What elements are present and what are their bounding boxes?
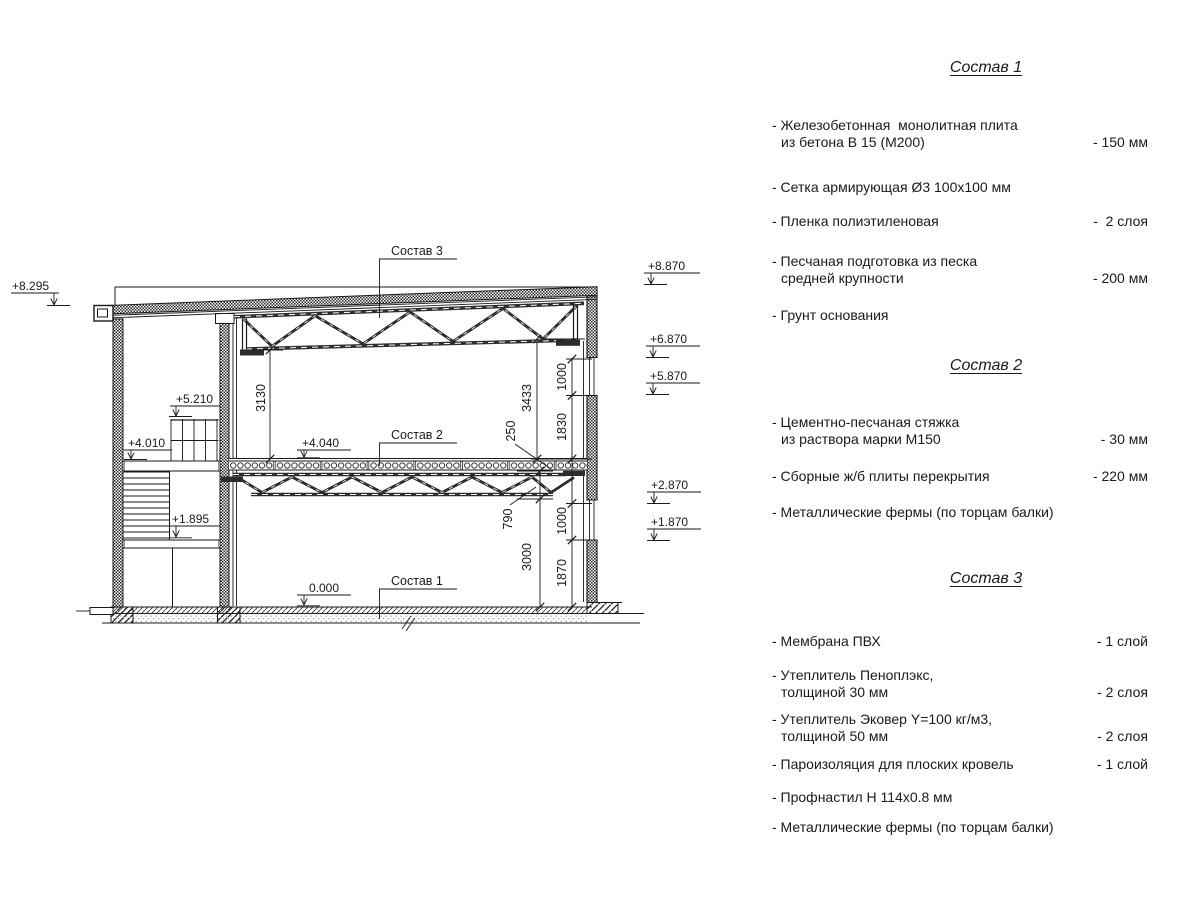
spec-item-value: - 30 мм	[1101, 431, 1148, 448]
spec-item: - Сборные ж/б плиты перекрытия - 220 мм	[772, 468, 1148, 485]
spec-item: - Железобетонная монолитная плитаиз бето…	[772, 117, 1148, 151]
elevation-mark-0000	[297, 595, 351, 606]
level-2870-label: +2.870	[651, 478, 688, 492]
elevation-mark-1895	[168, 526, 220, 538]
floor-slab-level2	[229, 459, 587, 471]
spec-item-text: - Сборные ж/б плиты перекрытия	[772, 468, 990, 485]
dim-1870: 1870	[555, 559, 569, 587]
level-8870-label: +8.870	[648, 259, 685, 273]
spec-item-text: - Песчаная подготовка из песка	[772, 253, 977, 270]
level-4010-label: +4.010	[128, 436, 165, 450]
elevation-mark-4040	[297, 450, 351, 458]
spec-item: - Утеплитель Пеноплэкс,толщиной 30 мм - …	[772, 667, 1148, 701]
spec-item-value: - 1 слой	[1097, 756, 1148, 773]
elevation-mark-5870	[646, 383, 700, 395]
spec-item: - Сетка армирующая Ø3 100х100 мм	[772, 179, 1148, 196]
spec-item-text: - Пароизоляция для плоских кровель	[772, 756, 1014, 773]
spec-item: - Пленка полиэтиленовая - 2 слоя	[772, 213, 1148, 230]
spec-item-value: - 2 слоя	[1097, 684, 1148, 701]
spec-title-1: Состав 1	[772, 59, 1148, 77]
foundation-pad	[587, 603, 618, 614]
spec-item: - Металлические фермы (по торцам балки)	[772, 504, 1148, 521]
lower-window	[586, 500, 597, 540]
elevation-mark-1870	[647, 529, 701, 541]
spec-item-text2: из раствора марки М150	[772, 431, 959, 448]
level-1870-label: +1.870	[651, 515, 688, 529]
spec-item-value: - 150 мм	[1093, 134, 1148, 151]
spec-item-text2: толщиной 50 мм	[772, 728, 992, 745]
elevation-mark-4010	[124, 450, 172, 460]
elevation-mark-5210	[169, 406, 220, 417]
spec-item: - Цементно-песчаная стяжкаиз раствора ма…	[772, 414, 1148, 448]
dim-3130: 3130	[254, 384, 268, 412]
elevation-mark-8295	[11, 293, 70, 306]
spec-item: - Мембрана ПВХ - 1 слой	[772, 633, 1148, 650]
foundation-pad	[111, 607, 133, 623]
dim-790: 790	[501, 509, 515, 530]
spec-item-text: - Грунт основания	[772, 307, 889, 324]
spec-item-text: - Цементно-песчаная стяжка	[772, 414, 959, 431]
callout-sostav2: Состав 2	[391, 428, 443, 442]
blueprint-page: +8.295 +8.870 +6.870 +5.870 +2.870 +1.87…	[0, 0, 1200, 900]
spec-item-text2: толщиной 30 мм	[772, 684, 933, 701]
spec-block-2: Состав 2 - Цементно-песчаная стяжкаиз ра…	[772, 357, 1148, 521]
spec-item-value: - 2 слоя	[1097, 728, 1148, 745]
spec-item-text: - Металлические фермы (по торцам балки)	[772, 504, 1054, 521]
level-5210-label: +5.210	[176, 392, 213, 406]
dim-1830: 1830	[555, 413, 569, 441]
elevation-mark-6870	[646, 346, 700, 358]
spec-item-value: - 2 слоя	[1093, 213, 1148, 230]
dim-1000-upper: 1000	[555, 363, 569, 391]
spec-item-text: - Утеплитель Эковер Y=100 кг/м3,	[772, 711, 992, 728]
left-wall	[113, 319, 123, 607]
spec-block-3: Состав 3 - Мембрана ПВХ - 1 слой - Утепл…	[772, 570, 1148, 836]
spec-item-text: - Профнастил Н 114х0.8 мм	[772, 789, 952, 806]
dim-3000: 3000	[520, 543, 534, 571]
spec-item-text: - Мембрана ПВХ	[772, 633, 881, 650]
eave-detail	[94, 306, 113, 322]
level-5870-label: +5.870	[650, 369, 687, 383]
spec-item: - Металлические фермы (по торцам балки)	[772, 819, 1148, 836]
spec-item-text2: из бетона В 15 (М200)	[772, 134, 1018, 151]
spec-item: - Грунт основания	[772, 307, 1148, 324]
level-4040-label: +4.040	[302, 436, 339, 450]
right-wall	[586, 287, 597, 603]
spec-block-1: Состав 1 - Железобетонная монолитная пли…	[772, 59, 1148, 324]
dim-1000-lower: 1000	[555, 507, 569, 535]
roof	[94, 287, 597, 321]
spec-item: - Профнастил Н 114х0.8 мм	[772, 789, 1148, 806]
spec-title-3: Состав 3	[772, 570, 1148, 588]
railing	[171, 419, 219, 461]
callout-sostav3: Состав 3	[391, 244, 443, 258]
level-1895-label: +1.895	[172, 512, 209, 526]
spec-item-text2: средней крупности	[772, 270, 977, 287]
dim-3433: 3433	[520, 384, 534, 412]
callout-sostav1: Состав 1	[391, 574, 443, 588]
foundation-pad	[218, 607, 241, 623]
stairs	[123, 471, 173, 607]
section-drawing: +8.295 +8.870 +6.870 +5.870 +2.870 +1.87…	[0, 0, 760, 660]
spec-item-value: - 220 мм	[1093, 468, 1148, 485]
spec-item-value: - 1 слой	[1097, 633, 1148, 650]
spec-item: - Утеплитель Эковер Y=100 кг/м3,толщиной…	[772, 711, 1148, 745]
spec-item-text: - Железобетонная монолитная плита	[772, 117, 1018, 134]
roof-insulation-band	[94, 287, 597, 315]
floor-foundation	[76, 603, 644, 632]
spec-title-2: Состав 2	[772, 357, 1148, 375]
spec-item: - Пароизоляция для плоских кровель - 1 с…	[772, 756, 1148, 773]
apron-slab	[90, 608, 113, 615]
level-0000-label: 0.000	[309, 581, 339, 595]
lintel-block	[216, 314, 235, 324]
level-8295-label: +8.295	[12, 279, 49, 293]
stair-landing-slab-4010	[123, 461, 220, 471]
spec-item-text: - Сетка армирующая Ø3 100х100 мм	[772, 179, 1011, 196]
elevation-mark-2870	[647, 492, 701, 504]
spec-item-text: - Утеплитель Пеноплэкс,	[772, 667, 933, 684]
dim-250: 250	[504, 421, 518, 442]
elevation-mark-8870	[644, 273, 700, 285]
spec-item: - Песчаная подготовка из пескасредней кр…	[772, 253, 1148, 287]
level-6870-label: +6.870	[650, 332, 687, 346]
spec-item-text: - Металлические фермы (по торцам балки)	[772, 819, 1054, 836]
spec-item-value: - 200 мм	[1093, 270, 1148, 287]
upper-window	[586, 358, 597, 396]
spec-item-text: - Пленка полиэтиленовая	[772, 213, 939, 230]
stair-landing-slab-1895	[123, 540, 220, 548]
